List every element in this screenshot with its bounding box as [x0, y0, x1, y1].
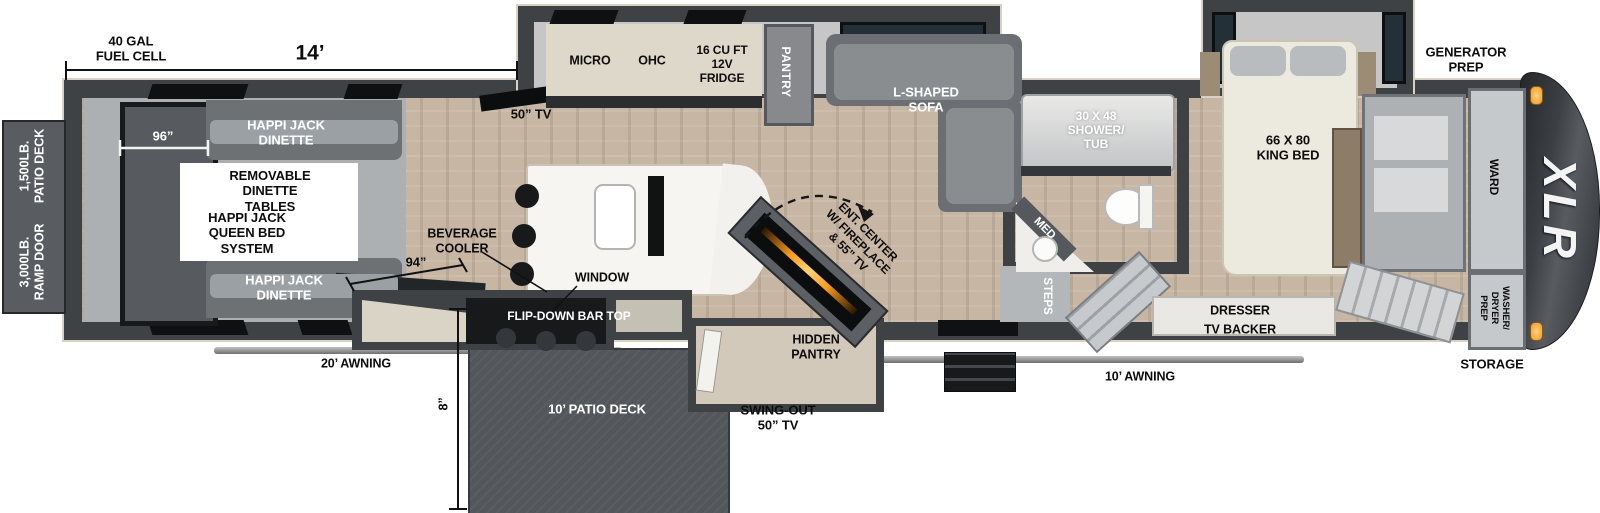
main-awning-label: 10’ AWNING — [1105, 370, 1175, 385]
micro-label: MICRO — [569, 54, 610, 69]
washer-dryer-prep-label: WASHER/ DRYER PREP — [1477, 286, 1511, 330]
queen-bed-system-label: HAPPI JACK QUEEN BED SYSTEM — [208, 210, 286, 256]
annotation-lines — [0, 0, 1600, 513]
beverage-cooler-label: BEVERAGE COOLER — [427, 226, 496, 256]
hidden-pantry-label: HIDDEN PANTRY — [791, 332, 840, 362]
fridge-label: 16 CU FT 12V FRIDGE — [696, 43, 747, 85]
storage-label: STORAGE — [1460, 356, 1523, 371]
floorplan-canvas: 40 GAL FUEL CELL 14’ 1,500LB. PATIO DECK… — [0, 0, 1600, 513]
fuel-cell-label: 40 GAL FUEL CELL — [96, 34, 166, 65]
sofa-label: L-SHAPED SOFA — [893, 85, 959, 116]
shower-label: 30 X 48 SHOWER/ TUB — [1068, 109, 1125, 151]
ramp-door-rating-label: 3,000LB. RAMP DOOR — [17, 224, 47, 301]
dresser-label: DRESSER — [1210, 304, 1270, 319]
flip-down-bar-label: FLIP-DOWN BAR TOP — [507, 309, 630, 323]
dinette-rear-label: HAPPI JACK DINETTE — [245, 273, 323, 304]
patio-deck-label: 10’ PATIO DECK — [548, 401, 646, 416]
tv-backer-label: TV BACKER — [1204, 323, 1276, 338]
pantry-label: PANTRY — [779, 47, 793, 98]
deck-height-label: 8” — [437, 397, 452, 410]
swing-out-tv-label: SWING-OUT 50” TV — [741, 403, 816, 434]
window-label: WINDOW — [575, 271, 629, 286]
rear-awning-label: 20’ AWNING — [321, 357, 391, 372]
ohc-label: OHC — [638, 54, 665, 69]
removable-tables-label: REMOVABLE DINETTE TABLES — [229, 168, 310, 214]
dinette-front-label: HAPPI JACK DINETTE — [247, 118, 325, 149]
steps-label: STEPS — [1039, 277, 1053, 314]
generator-prep-label: GENERATOR PREP — [1426, 45, 1507, 76]
ward-label: WARD — [1487, 159, 1501, 195]
garage-length-label: 14’ — [296, 42, 325, 67]
counter-length-label: 94” — [406, 254, 427, 269]
king-bed-label: 66 X 80 KING BED — [1257, 133, 1320, 164]
patio-deck-rating-label: 1,500LB. PATIO DECK — [17, 129, 47, 203]
brand-logo: XLR — [1533, 158, 1587, 262]
garage-tv-label: 50” TV — [511, 106, 552, 121]
garage-width-label: 96” — [153, 128, 174, 143]
